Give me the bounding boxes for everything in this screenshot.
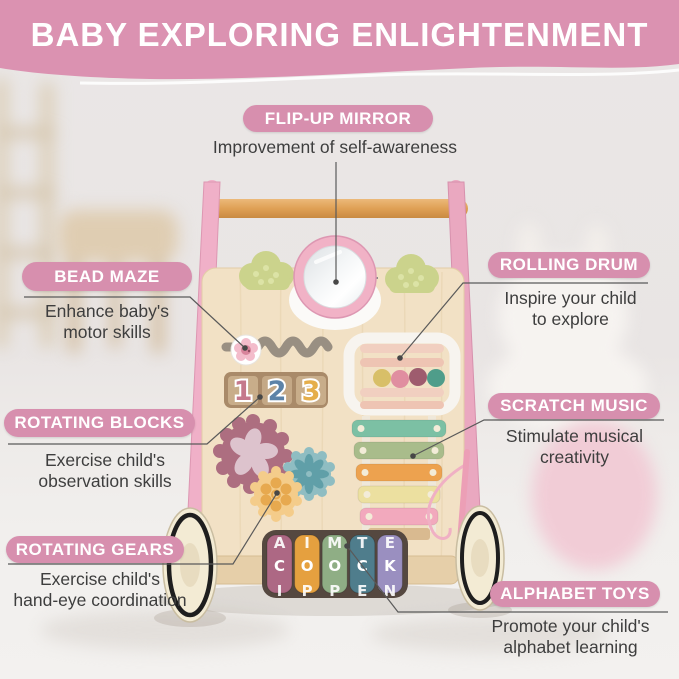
callout-desc-alphabet-toys: Promote your child's alphabet learning xyxy=(468,616,673,659)
toy-rotating-blocks: 1 2 3 xyxy=(224,372,328,408)
handle-rail-left-cap xyxy=(204,180,220,196)
alphabet-roller xyxy=(350,535,375,593)
xylophone-pins xyxy=(358,425,441,520)
base-strip xyxy=(206,556,458,584)
toy-rolling-drum xyxy=(349,338,455,410)
number-block-1: 1 xyxy=(234,376,253,407)
roller-letter: O xyxy=(328,557,341,575)
toy-rotating-gears xyxy=(213,414,335,522)
product-infographic: 1 2 3 xyxy=(0,0,679,679)
number-block-3: 3 xyxy=(302,376,321,407)
side-frame-right xyxy=(448,182,482,552)
callout-pill-alphabet-toys: ALPHABET TOYS xyxy=(490,581,660,607)
callout-desc-scratch-music: Stimulate musical creativity xyxy=(482,426,667,469)
handle-rail-right-cap xyxy=(448,180,464,196)
roller-letter: N xyxy=(384,582,397,600)
alphabet-roller xyxy=(267,535,292,593)
roller-letter: A xyxy=(274,534,286,552)
xylophone-bars xyxy=(352,420,446,525)
drum-bead xyxy=(373,369,391,387)
toy-bead-maze xyxy=(226,335,328,365)
ladybug-slider xyxy=(234,338,258,361)
callout-desc-rotating-blocks: Exercise child's observation skills xyxy=(10,450,200,493)
drum-bead xyxy=(427,369,445,387)
callout-pill-rolling-drum: ROLLING DRUM xyxy=(488,252,650,278)
toy-alphabet-rollers: A C J I O P M O P T C E E K N xyxy=(262,530,408,600)
roller-letter: E xyxy=(385,534,395,552)
scratch-stick xyxy=(428,452,467,542)
roller-letter: I xyxy=(304,534,310,552)
roller-letter: O xyxy=(301,557,314,575)
roller-letter: T xyxy=(357,534,368,552)
roller-letter: M xyxy=(327,534,342,552)
callout-pill-flip-up-mirror: FLIP-UP MIRROR xyxy=(243,105,433,132)
roller-letter: E xyxy=(357,582,367,600)
callout-pill-rotating-blocks: ROTATING BLOCKS xyxy=(4,409,195,437)
alphabet-roller xyxy=(295,535,320,593)
gear-orange xyxy=(250,466,302,522)
roller-letter: P xyxy=(329,582,340,600)
roller-letter: K xyxy=(384,557,397,575)
side-frame-left xyxy=(186,182,220,552)
activity-board xyxy=(202,268,464,572)
banner-title: BABY EXPLORING ENLIGHTENMENT xyxy=(0,16,679,54)
callout-desc-rolling-drum: Inspire your child to explore xyxy=(478,288,663,331)
callout-desc-bead-maze: Enhance baby's motor skills xyxy=(12,301,202,344)
alphabet-roller xyxy=(377,535,402,593)
gear-mauve xyxy=(213,414,293,494)
callout-pill-rotating-gears: ROTATING GEARS xyxy=(6,536,184,563)
roller-letter: C xyxy=(357,557,368,575)
gear-teal xyxy=(283,447,335,501)
roller-letter: P xyxy=(302,582,313,600)
callout-pill-bead-maze: BEAD MAZE xyxy=(22,262,192,291)
number-block-2: 2 xyxy=(268,376,287,407)
toy-flip-up-mirror xyxy=(289,236,381,330)
drum-bead xyxy=(391,370,409,388)
wood-grain xyxy=(240,272,442,568)
callout-pill-scratch-music: SCRATCH MUSIC xyxy=(488,393,660,419)
toy-scratch-music-xylophone xyxy=(352,416,467,542)
callout-desc-rotating-gears: Exercise child's hand-eye coordination xyxy=(0,569,200,612)
callout-desc-flip-up-mirror: Improvement of self-awareness xyxy=(195,137,475,158)
handle-bar xyxy=(206,199,468,218)
roller-letter: C xyxy=(274,557,285,575)
alphabet-roller xyxy=(322,535,347,593)
roller-letter: J xyxy=(276,582,283,600)
drum-bead xyxy=(409,368,427,386)
cloud-right xyxy=(385,254,439,293)
cloud-left xyxy=(239,251,294,290)
